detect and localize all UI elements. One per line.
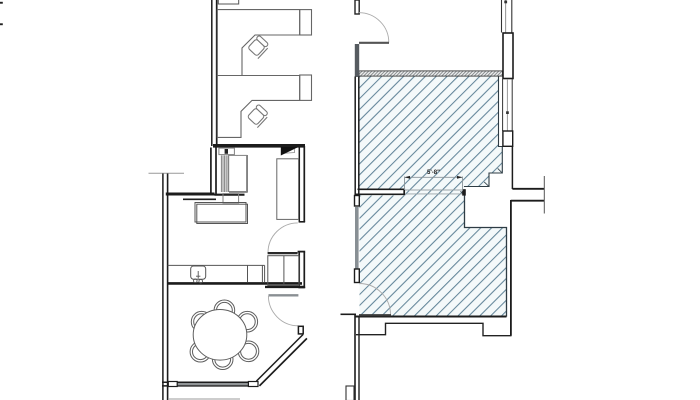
svg-text:5'-8": 5'-8" [427,170,440,176]
